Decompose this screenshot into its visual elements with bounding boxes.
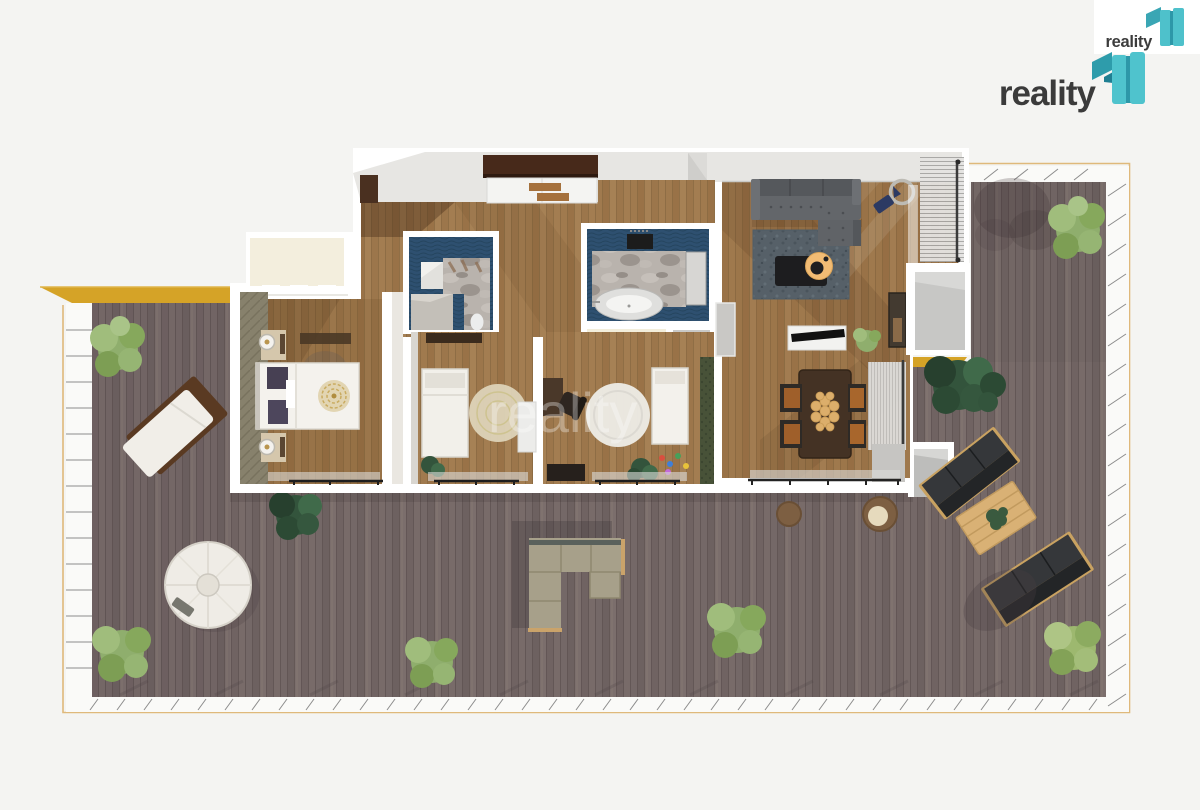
- svg-text:reality: reality: [999, 74, 1097, 113]
- svg-text:reality: reality: [1105, 33, 1153, 51]
- svg-text:reality: reality: [488, 381, 637, 444]
